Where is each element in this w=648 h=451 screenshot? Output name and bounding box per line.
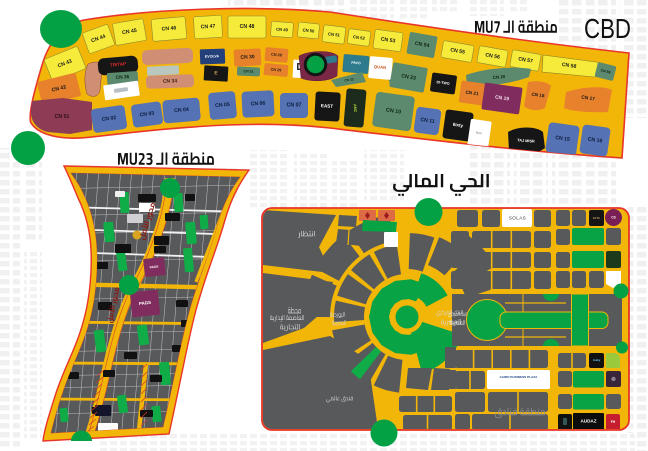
svg-text:AMZ: AMZ — [353, 104, 358, 113]
svg-text:AUDAZ: AUDAZ — [580, 419, 596, 424]
svg-text:CS: CS — [611, 216, 615, 220]
svg-text:CN 06: CN 06 — [250, 101, 265, 108]
svg-text:EAST: EAST — [321, 103, 334, 109]
svg-text:CN 49: CN 49 — [276, 27, 289, 33]
svg-text:FH: FH — [611, 420, 616, 424]
svg-text:CN 47: CN 47 — [200, 24, 215, 31]
svg-text:PAVO: PAVO — [351, 61, 361, 66]
svg-text:CBD: CBD — [584, 13, 631, 44]
svg-text:CAIRO BUSINESS PLAZA: CAIRO BUSINESS PLAZA — [500, 375, 539, 379]
svg-text:livv: livv — [476, 131, 482, 136]
svg-text:Araby: Araby — [593, 358, 601, 362]
svg-text:CN 07: CN 07 — [287, 103, 302, 109]
svg-text:CN 36: CN 36 — [115, 74, 129, 81]
svg-text:CN 48: CN 48 — [240, 24, 255, 30]
svg-text:ELTA: ELTA — [593, 216, 600, 220]
svg-text:CN 01: CN 01 — [55, 114, 70, 120]
svg-text:EVOLVA: EVOLVA — [205, 54, 220, 59]
svg-text:SOLAS: SOLAS — [509, 216, 526, 221]
svg-text:CN 31: CN 31 — [243, 69, 253, 73]
svg-text:CN 34: CN 34 — [163, 78, 178, 84]
svg-text:CN 30: CN 30 — [240, 54, 255, 61]
